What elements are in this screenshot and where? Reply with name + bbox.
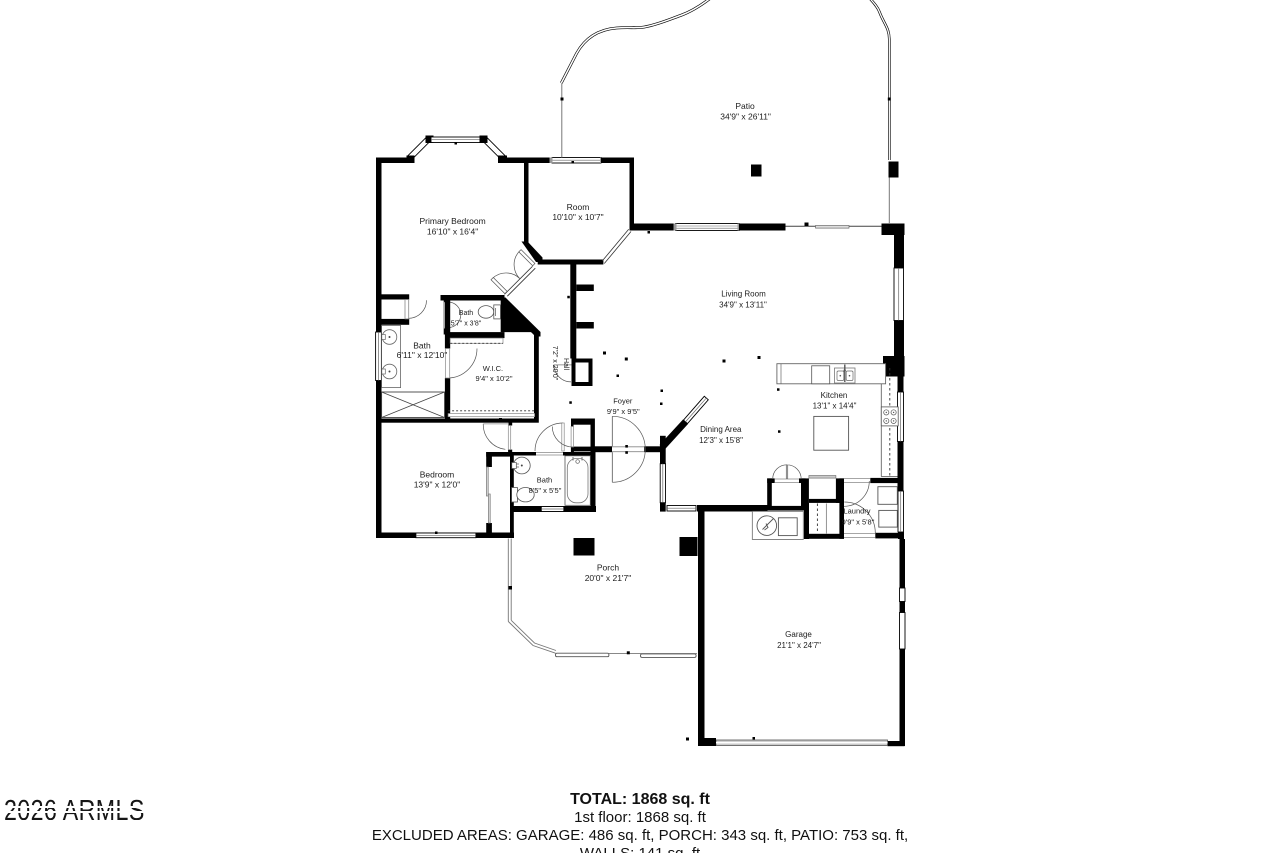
svg-text:12'3" x 15'8": 12'3" x 15'8" — [699, 436, 743, 445]
svg-text:10'10" x 10'7": 10'10" x 10'7" — [552, 212, 603, 222]
svg-text:Room: Room — [567, 202, 590, 212]
svg-text:9'9" x 5'8": 9'9" x 5'8" — [842, 518, 875, 527]
svg-text:Garage: Garage — [785, 630, 812, 639]
svg-text:13'9" x 12'0": 13'9" x 12'0" — [414, 480, 461, 490]
svg-text:34'9" x 26'11": 34'9" x 26'11" — [720, 112, 771, 122]
svg-text:Patio: Patio — [735, 101, 755, 111]
svg-text:9'9" x 9'5": 9'9" x 9'5" — [607, 407, 640, 416]
svg-text:Bath: Bath — [413, 341, 431, 351]
svg-text:13'1" x 14'4": 13'1" x 14'4" — [813, 402, 857, 411]
svg-text:Kitchen: Kitchen — [821, 391, 848, 400]
svg-text:34'9" x 13'11": 34'9" x 13'11" — [719, 301, 767, 310]
svg-text:Bath: Bath — [537, 476, 552, 485]
svg-text:6'11" x 12'10": 6'11" x 12'10" — [397, 350, 448, 360]
svg-text:21'1" x 24'7": 21'1" x 24'7" — [777, 641, 821, 650]
svg-text:Primary Bedroom: Primary Bedroom — [420, 216, 486, 226]
svg-text:Dining Area: Dining Area — [700, 425, 742, 434]
svg-text:Laundry: Laundry — [843, 507, 870, 516]
svg-text:Living Room: Living Room — [721, 290, 766, 299]
svg-text:20'0" x 21'7": 20'0" x 21'7" — [585, 573, 632, 583]
svg-text:7'2" x 20'0": 7'2" x 20'0" — [551, 346, 558, 381]
svg-text:5'7" x 3'8": 5'7" x 3'8" — [451, 321, 482, 328]
svg-text:W.I.C.: W.I.C. — [483, 364, 503, 373]
svg-text:Bedroom: Bedroom — [420, 470, 455, 480]
svg-text:9'4" x 10'2": 9'4" x 10'2" — [476, 374, 513, 383]
svg-text:Hall: Hall — [562, 358, 569, 371]
svg-text:Foyer: Foyer — [613, 397, 633, 406]
svg-text:Porch: Porch — [597, 563, 619, 573]
svg-text:Bath: Bath — [459, 310, 474, 317]
svg-text:8'5" x 5'5": 8'5" x 5'5" — [529, 486, 562, 495]
svg-text:16'10" x 16'4": 16'10" x 16'4" — [427, 227, 478, 237]
